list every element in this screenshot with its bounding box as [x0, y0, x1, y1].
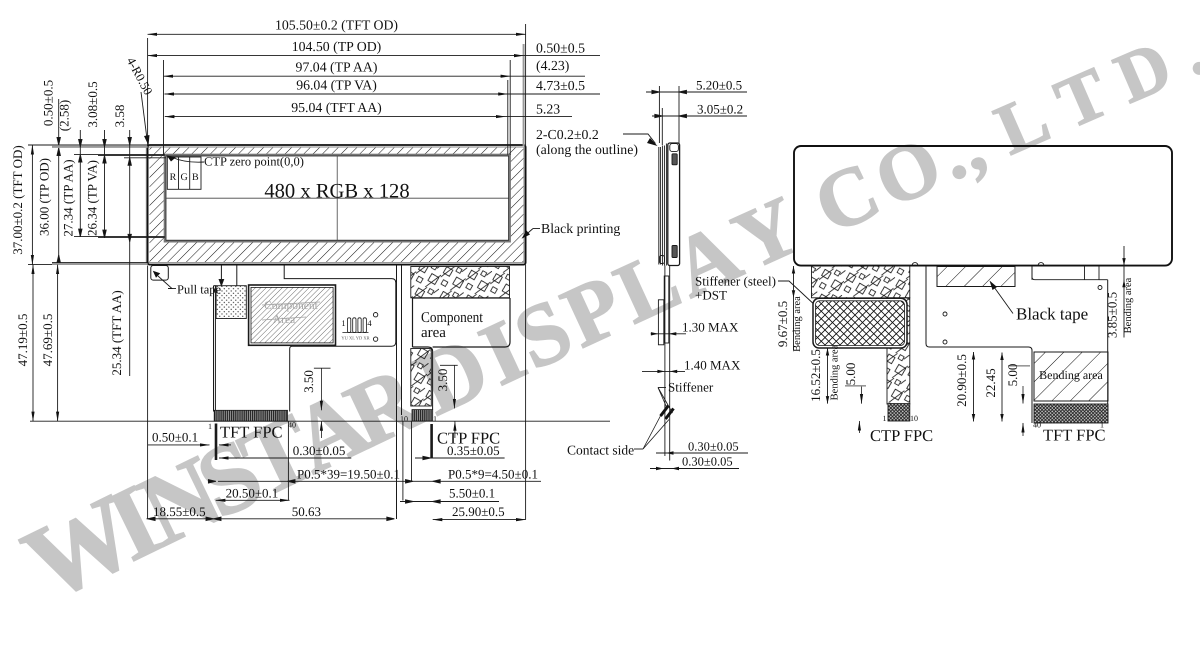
svg-text:5.00: 5.00: [1005, 364, 1020, 387]
svg-text:20.90±0.5: 20.90±0.5: [954, 354, 969, 407]
svg-text:Black tape: Black tape: [1016, 305, 1088, 324]
svg-text:TFT FPC: TFT FPC: [1043, 426, 1106, 445]
svg-text:5.50±0.1: 5.50±0.1: [449, 485, 495, 500]
svg-text:36.00 (TP OD): 36.00 (TP OD): [37, 158, 52, 236]
svg-text:4.73±0.5: 4.73±0.5: [536, 78, 585, 93]
svg-text:Bending area: Bending area: [1123, 277, 1134, 333]
svg-text:0.50±0.1: 0.50±0.1: [152, 430, 198, 445]
svg-text:50.63: 50.63: [292, 504, 321, 519]
svg-text:3.58: 3.58: [112, 105, 127, 128]
svg-text:B: B: [192, 172, 199, 183]
svg-text:2-C0.2±0.2: 2-C0.2±0.2: [536, 127, 599, 142]
svg-text:5.20±0.5: 5.20±0.5: [696, 78, 742, 93]
svg-text:96.04 (TP VA): 96.04 (TP VA): [296, 78, 377, 93]
svg-text:P0.5*39=19.50±0.1: P0.5*39=19.50±0.1: [297, 466, 400, 481]
svg-text:Black printing: Black printing: [541, 221, 620, 236]
svg-text:97.04 (TP AA): 97.04 (TP AA): [296, 60, 378, 75]
svg-text:3.85±0.5: 3.85±0.5: [1105, 292, 1120, 338]
svg-text:0.50±0.5: 0.50±0.5: [41, 80, 56, 126]
svg-text:27.34 (TP AA): 27.34 (TP AA): [61, 159, 76, 236]
svg-text:Component: Component: [421, 310, 484, 326]
svg-text:25.90±0.5: 25.90±0.5: [452, 504, 505, 519]
svg-text:5.23: 5.23: [536, 102, 560, 117]
svg-text:Bending area: Bending area: [1039, 368, 1103, 382]
svg-text:Bending area: Bending area: [830, 344, 841, 400]
svg-text:1.30 MAX: 1.30 MAX: [682, 320, 739, 335]
svg-text:CTP zero point(0,0): CTP zero point(0,0): [204, 155, 304, 169]
svg-text:40: 40: [288, 421, 296, 430]
svg-text:40: 40: [1033, 421, 1041, 430]
svg-text:1: 1: [208, 422, 212, 431]
svg-text:26.34 (TP VA): 26.34 (TP VA): [85, 160, 100, 236]
svg-text:YU XL YD XR: YU XL YD XR: [341, 336, 369, 341]
svg-text:10: 10: [910, 414, 918, 423]
svg-text:37.00±0.2 (TFT OD): 37.00±0.2 (TFT OD): [10, 145, 25, 254]
svg-text:47.69±0.5: 47.69±0.5: [40, 314, 55, 367]
svg-text:G: G: [180, 172, 187, 183]
svg-text:CTP FPC: CTP FPC: [870, 426, 933, 445]
svg-text:0.30±0.05: 0.30±0.05: [293, 443, 346, 458]
svg-text:0.30±0.05: 0.30±0.05: [688, 440, 739, 454]
svg-text:Bending area: Bending area: [792, 296, 803, 352]
svg-text:0.50±0.5: 0.50±0.5: [536, 41, 585, 56]
svg-text:0.35±0.05: 0.35±0.05: [447, 443, 500, 458]
svg-text:1: 1: [341, 318, 345, 328]
svg-text:10: 10: [400, 415, 408, 424]
svg-text:R: R: [170, 172, 177, 183]
svg-text:104.50 (TP OD): 104.50 (TP OD): [292, 39, 382, 54]
svg-text:1: 1: [883, 414, 887, 423]
svg-text:Stiffener: Stiffener: [668, 380, 714, 395]
svg-text:Component: Component: [264, 300, 318, 312]
svg-text:P0.5*9=4.50±0.1: P0.5*9=4.50±0.1: [448, 466, 538, 481]
svg-text:Contact side: Contact side: [567, 443, 634, 458]
svg-text:1.40 MAX: 1.40 MAX: [684, 358, 741, 373]
svg-text:16.52±0.5: 16.52±0.5: [808, 349, 823, 402]
svg-text:3.05±0.2: 3.05±0.2: [697, 102, 743, 117]
svg-text:0.30±0.05: 0.30±0.05: [682, 455, 733, 469]
svg-text:47.19±0.5: 47.19±0.5: [15, 314, 30, 367]
svg-text:95.04 (TFT AA): 95.04 (TFT AA): [291, 100, 382, 115]
svg-text:area: area: [421, 325, 446, 341]
svg-text:3.50: 3.50: [435, 369, 450, 392]
svg-text:+DST: +DST: [695, 288, 727, 303]
svg-text:3.50: 3.50: [301, 370, 316, 393]
svg-text:Stiffener (steel): Stiffener (steel): [695, 274, 776, 289]
svg-text:1: 1: [433, 415, 437, 424]
svg-text:Pull tape: Pull tape: [177, 283, 222, 297]
svg-text:TFT FPC: TFT FPC: [220, 423, 283, 442]
svg-text:(4.23): (4.23): [536, 58, 569, 73]
svg-text:9.67±0.5: 9.67±0.5: [775, 301, 790, 347]
svg-text:(along the outline): (along the outline): [536, 142, 638, 157]
svg-text:(2.58): (2.58): [57, 100, 72, 131]
svg-text:480 x RGB x 128: 480 x RGB x 128: [264, 181, 409, 203]
svg-text:18.55±0.5: 18.55±0.5: [153, 504, 206, 519]
svg-text:3.08±0.5: 3.08±0.5: [85, 81, 100, 127]
svg-text:Area: Area: [273, 314, 295, 326]
svg-text:105.50±0.2 (TFT OD): 105.50±0.2 (TFT OD): [275, 18, 398, 33]
svg-text:22.45: 22.45: [983, 368, 998, 397]
svg-text:5.00: 5.00: [843, 363, 858, 386]
svg-text:20.50±0.1: 20.50±0.1: [226, 485, 279, 500]
svg-text:25.34 (TFT AA): 25.34 (TFT AA): [109, 290, 124, 375]
